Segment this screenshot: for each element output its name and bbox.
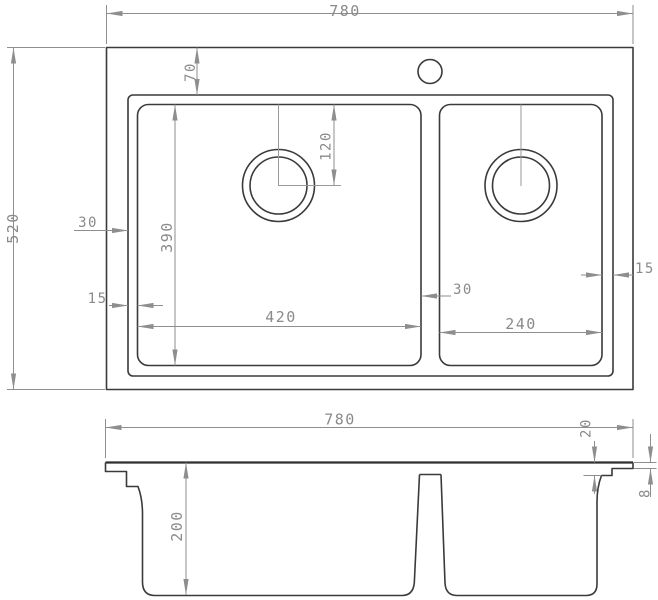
dim-rim-offset-top: 70 <box>183 48 199 96</box>
dim-bowl-to-rim-right: 15 <box>581 261 655 277</box>
dim-rim-to-bowl-left: 15 <box>88 291 163 307</box>
dim-label: 20 <box>579 418 595 438</box>
dim-label: 8 <box>638 488 654 498</box>
faucet-hole <box>418 60 442 84</box>
dim-label: 15 <box>88 291 108 307</box>
dim-edge-to-rim-left: 30 <box>74 215 128 231</box>
dim-label: 780 <box>329 2 361 20</box>
dim-front-overall-width: 780 <box>106 411 634 459</box>
dim-rim-step-height: 20 <box>579 418 602 494</box>
drawing-sheet: 780 520 70 120 390 30 <box>0 0 658 600</box>
dim-label: 15 <box>635 261 655 277</box>
mounting-rim-outline <box>128 95 613 376</box>
dim-label: 30 <box>453 282 473 298</box>
dim-label: 120 <box>319 131 335 161</box>
front-view: 780 20 8 200 <box>106 411 657 596</box>
dim-rim-sheet-thickness: 8 <box>634 434 657 498</box>
dim-label: 200 <box>168 510 186 542</box>
dim-label: 390 <box>158 221 176 253</box>
dim-top-overall-width: 780 <box>107 2 634 44</box>
dim-left-bowl-width: 420 <box>138 308 422 327</box>
top-view: 780 520 70 120 390 30 <box>4 2 655 390</box>
dim-label: 420 <box>265 308 297 326</box>
outer-body-outline <box>107 48 634 390</box>
dim-bowl-gap: 30 <box>421 282 473 298</box>
dim-label: 240 <box>505 315 537 333</box>
dim-drain-offset: 120 <box>319 105 335 186</box>
dim-label: 30 <box>78 215 98 231</box>
dim-bowl-depth: 200 <box>168 463 186 596</box>
sink-technical-drawing: 780 520 70 120 390 30 <box>0 0 658 600</box>
left-bowl-profile <box>106 463 420 596</box>
dim-right-bowl-width: 240 <box>440 315 603 333</box>
right-bowl-profile <box>441 463 633 596</box>
dim-label: 780 <box>324 411 356 429</box>
dim-label: 520 <box>4 212 22 244</box>
dim-label: 70 <box>183 62 199 82</box>
